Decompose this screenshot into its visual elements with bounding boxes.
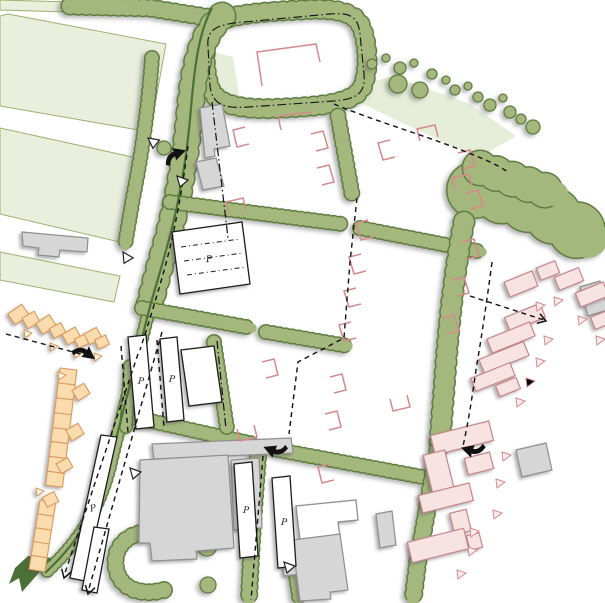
entrance-marker-pink [554,297,563,306]
entrance-marker-orange [36,488,44,496]
plot-frontage-mark [390,395,410,411]
entrance-marker-orange [94,353,102,361]
plot-frontage-mark [257,44,320,86]
tree [427,69,437,79]
tree [200,577,216,593]
tree [412,82,428,98]
tree [464,82,472,90]
plot-frontage-mark [325,411,341,430]
site-plan-page: PPPPPP [0,0,605,603]
existing-building [516,443,552,477]
tree [450,85,460,95]
fields [0,0,516,302]
entrance-marker-pink [544,336,553,345]
tree [473,92,483,102]
entrance-marker-pink [493,510,502,519]
hedge-v1-fill [338,116,352,194]
tree [526,120,540,134]
existing-building [376,511,396,548]
existing-building [292,534,348,601]
entrance-marker-orange [24,330,32,338]
tree [499,94,507,102]
plot-frontage-mark [317,165,334,185]
building-outline-south [296,500,358,540]
outlined-building [181,346,222,406]
proposed-building [504,271,538,297]
tree [484,99,496,111]
plot-frontage-mark [349,254,366,274]
entrance-marker-pink [502,452,511,461]
hedgerow-h3-east-fill [278,450,428,478]
entrance-marker-white [121,252,134,265]
footpath-dashed [289,198,357,434]
field-strip-top [0,0,70,12]
plot-frontage-mark [311,131,328,151]
plot-frontage-mark [378,140,395,160]
tree [367,59,377,69]
tree [394,62,406,74]
plot-frontage-mark [233,127,249,147]
tree [516,114,526,124]
entrance-marker-pink [496,479,505,488]
entrance-marker-pink [536,358,545,367]
plot-frontage-mark [330,374,346,393]
tree [389,75,407,93]
entrance-marker-pink [526,378,535,387]
tree [157,141,171,155]
entrance-marker-pink [457,570,466,579]
school-main-block [139,455,234,561]
existing-building [196,158,224,190]
entrance-marker-pink [578,316,587,325]
tree [442,76,450,84]
entrance-marker-pink [596,336,605,345]
field-strip-3 [0,252,120,302]
entrance-marker-pink [516,398,525,407]
plot-frontage-mark [262,359,278,378]
tree [410,59,418,67]
existing-building [22,232,88,257]
tree [382,54,390,62]
proposed-building [464,452,493,475]
tree [504,106,516,118]
site-plan-drawing: PPPPPP [0,0,605,603]
